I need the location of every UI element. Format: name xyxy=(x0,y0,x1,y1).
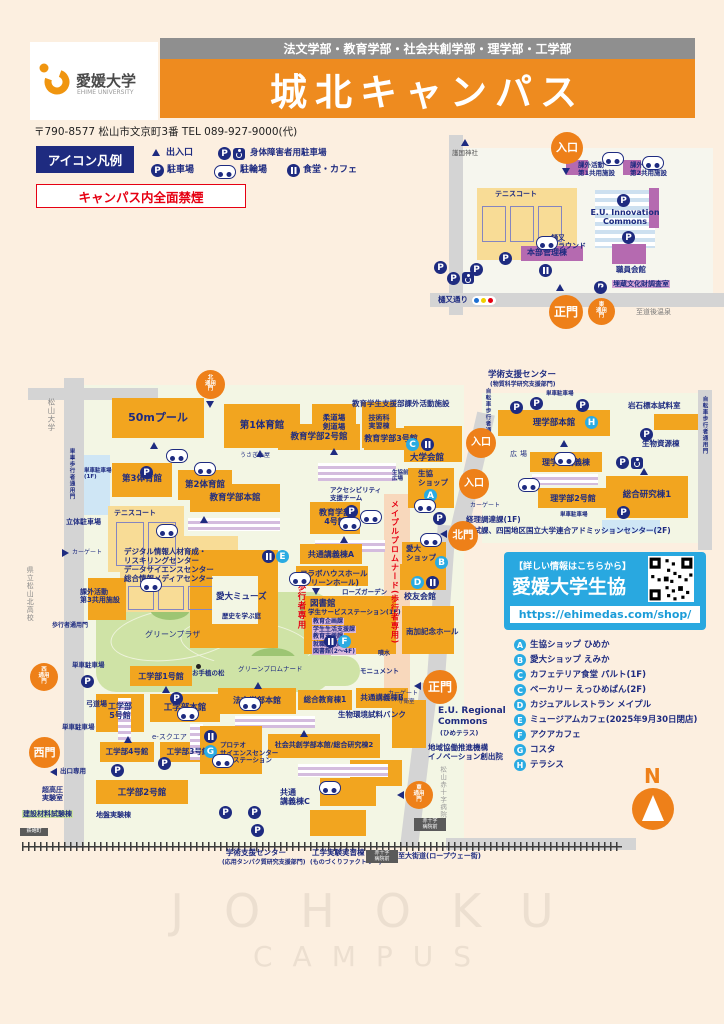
faculties-bar: 法文学部・教育学部・社会共創学部・理学部・工学部 xyxy=(160,38,695,59)
cafeteria-icon xyxy=(324,635,337,648)
gate-main: 正門 xyxy=(423,670,457,704)
parking-icon: P xyxy=(617,194,630,207)
building-eng4-label: 工学部4号館 xyxy=(100,748,154,757)
cafeteria-icon xyxy=(204,730,217,743)
keiri-label: 経理調達課(1F) xyxy=(466,516,521,525)
north-district-main-gate: 正門 xyxy=(549,295,583,329)
gate-marker xyxy=(596,285,604,292)
entrance-marker xyxy=(340,536,348,543)
coop-tagline: 【詳しい情報はこちらから】 xyxy=(514,559,631,572)
parking-icon: P xyxy=(447,272,460,285)
shop-list-marker: H xyxy=(514,759,526,771)
bicycle-parking-icon xyxy=(319,781,341,795)
rose-garden-label: ローズガーデン xyxy=(342,589,387,597)
bicycle-parking-icon xyxy=(414,499,436,513)
kita-hs-label: 県立松山北高校 xyxy=(26,566,34,622)
shop-list-label: ベーカリー えっひめぱん(2F) xyxy=(530,685,646,695)
building-eng1-label: 工学部1号館 xyxy=(130,672,192,681)
parking-structure xyxy=(532,474,598,485)
gate-north-service: 北 通用 門 xyxy=(196,370,225,399)
fountain-label: 噴水 xyxy=(378,650,390,657)
staff-hall-label: 職員会館 xyxy=(616,266,646,275)
bicycle-parking-icon xyxy=(156,524,178,538)
shop-list-label: アクアカフェ xyxy=(530,730,581,740)
university-name-ja: 愛媛大学 xyxy=(76,70,136,91)
gate-entrance-2: 入口 xyxy=(459,469,489,499)
parking-legend-icon: P xyxy=(151,164,164,177)
green-promenade-label: グリーンプロムナード xyxy=(238,666,302,674)
university-name-en: EHIME UNIVERSITY xyxy=(77,89,134,96)
cafeteria-icon xyxy=(426,576,439,589)
moto-parking-label: 単車駐車場 xyxy=(72,662,105,670)
cafeteria-icon xyxy=(262,550,275,563)
bicycle-parking-icon xyxy=(602,152,624,166)
entrance-marker xyxy=(256,450,264,457)
building-muse-label: 愛大ミューズ xyxy=(216,592,267,602)
maple-promenade-label: メイプルプロムナード(歩行者専用) xyxy=(390,500,399,702)
gate-west-service: 西 通用 門 xyxy=(30,663,58,691)
parking-icon: P xyxy=(433,512,446,525)
bicycle-parking-icon xyxy=(518,478,540,492)
shop-list-label: カジュアルレストラン メイプル xyxy=(530,700,651,710)
building-eng-lab xyxy=(310,810,366,836)
media-center-court xyxy=(158,586,184,610)
rock-sample-label: 岩石標本試料室 xyxy=(628,402,681,411)
wheelchair-icon xyxy=(233,148,245,160)
car-gate-label: カーゲート xyxy=(470,502,500,509)
no-smoking-notice: キャンパス内全面禁煙 xyxy=(36,184,246,208)
digital-center-label: デジタル情報人材育成・ リスキリングセンター データサイエンスセンター 総合情報… xyxy=(124,548,214,583)
okaido-label: 至大街道(ロープウェー街) xyxy=(398,852,481,860)
uhp-lab-label: 超高圧 実験室 xyxy=(42,786,63,803)
matsuyama-univ-label: 松山大学 xyxy=(46,398,55,432)
cafeteria-legend-label: 食堂・カフェ xyxy=(303,165,357,176)
parking-legend-label: 駐車場 xyxy=(167,165,194,176)
hiyou-street-label: 樋又通り xyxy=(438,296,468,305)
building-sci2-label: 理学部2号館 xyxy=(538,494,608,503)
building-lecture-a-label: 共通講義棟A xyxy=(300,550,362,559)
tram-stop-redcross: 赤十字 病院前 xyxy=(366,850,398,863)
station-dept-label: 学生生活支援課 xyxy=(312,626,356,633)
guard-label: 守衛室 xyxy=(398,699,415,705)
media-center-court xyxy=(188,586,214,610)
building-gym1-label: 第1体育館 xyxy=(224,420,300,431)
staff-hall-building xyxy=(612,244,646,264)
parking-icon: P xyxy=(140,466,153,479)
eu-regional-sub-label: (ひめテラス) xyxy=(440,730,478,738)
building-research1-label: 総合研究棟1 xyxy=(606,490,688,500)
eu-regional-label: E.U. Regional Commons xyxy=(438,706,506,727)
material-lab-label: 建設材料試験棟 xyxy=(22,810,73,818)
building-pool-label: 50mプール xyxy=(112,412,204,425)
building-club3-label: 課外活動 第3共用施設 xyxy=(80,588,120,605)
campus-title: 城北キャンパス xyxy=(270,62,585,116)
building-rock xyxy=(654,414,698,430)
entrance-marker xyxy=(330,448,338,455)
support-center-s-label: 学術支援センター xyxy=(226,849,286,858)
entrance-marker xyxy=(254,682,262,689)
bicycle-parking-legend-label: 駐輪場 xyxy=(240,165,267,176)
shop-marker-e: E xyxy=(276,550,289,563)
icon-legend-title: アイコン凡例 xyxy=(48,150,122,169)
bicycle-parking-icon xyxy=(289,572,311,586)
building-eng5-label: 工学部 5号館 xyxy=(96,702,144,721)
shop-list-marker: C xyxy=(514,684,526,696)
building-gen-edu1-label: 総合教育棟1 xyxy=(298,696,352,705)
parking-icon: P xyxy=(576,399,589,412)
exit-only-label: 出口専用 xyxy=(60,768,86,776)
pine-label: お手植の松 xyxy=(192,670,225,678)
bio-resource-label: 生物資源棟 xyxy=(642,440,680,449)
building-moto-parking-1f xyxy=(84,455,110,515)
bicycle-parking-icon xyxy=(420,533,442,547)
tennis-main-label: テニスコート xyxy=(114,509,156,517)
parking-tower-label: 立体駐車場 xyxy=(66,518,101,526)
bicycle-parking-icon xyxy=(360,510,382,524)
accessible-parking-icon: P xyxy=(218,147,231,160)
wheelchair-icon xyxy=(462,272,474,284)
gate-west: 西門 xyxy=(29,737,60,768)
bicycle-parking-icon xyxy=(194,462,216,476)
car-gate-label: カーゲート xyxy=(72,549,102,556)
entrance-marker xyxy=(640,468,648,475)
shop-list-marker: B xyxy=(514,654,526,666)
building-nanka-label: 南加記念ホール xyxy=(406,628,459,637)
shop-marker-f: F xyxy=(338,635,351,648)
campus-map-page: JOHOKU CAMPUS 法文学部・教育学部・社会共創学部・理学部・工学部 城… xyxy=(0,0,724,1024)
north-district-east-gate: 東 通用 門 xyxy=(588,298,615,325)
entrance-marker xyxy=(200,516,208,523)
gate-marker xyxy=(397,791,404,799)
building-moto-parking-1f-label: 単車駐車場 (1F) xyxy=(84,468,112,481)
building-univ-hall-label: 大学会館 xyxy=(410,453,444,463)
bicycle-parking-icon xyxy=(140,578,162,592)
parking-icon: P xyxy=(158,757,171,770)
bicycle-parking-icon xyxy=(339,517,361,531)
shop-list-marker: G xyxy=(514,744,526,756)
building-judo-label: 柔道場 剣道場 xyxy=(312,414,356,432)
bicycle-parking-icon xyxy=(642,156,664,170)
coop-plaza-label: 生協前 広場 xyxy=(392,470,409,483)
wheelchair-icon xyxy=(631,457,643,469)
shop-list-marker: C xyxy=(514,669,526,681)
bicycle-parking-icon xyxy=(239,697,261,711)
parking-icon: P xyxy=(510,401,523,414)
support-center-n-label: 学術支援センター xyxy=(488,370,556,380)
moto-parking-label: 単車駐車場 xyxy=(546,391,574,397)
bio-bank-label: 生物環境試料バンク xyxy=(338,711,406,720)
compass-n-label: N xyxy=(644,764,661,788)
watermark-campus: CAMPUS xyxy=(0,940,724,973)
entrance-legend-icon xyxy=(152,149,160,156)
tram-stop-redcross: 赤十字 病院前 xyxy=(414,818,446,831)
bike-ped-gate-label: 自転車歩行者通用門 xyxy=(701,396,707,455)
shop-marker-h: H xyxy=(585,416,598,429)
cafeteria-icon xyxy=(539,264,552,277)
shop-list-label: 愛大ショップ えみか xyxy=(530,655,609,665)
history-garden-label: 歴史を学ぶ庭 xyxy=(222,613,261,621)
parking-icon: P xyxy=(219,806,232,819)
accessibility-label: アクセシビリティ 支援チーム xyxy=(330,487,381,502)
shop-marker-b: B xyxy=(435,556,448,569)
parking-icon: P xyxy=(616,456,629,469)
coop-info-box: 【詳しい情報はこちらから】 愛媛大学生協 https://ehimedas.co… xyxy=(504,552,706,630)
shop-marker-c: C xyxy=(406,438,419,451)
qr-code xyxy=(648,556,694,602)
building-aidai-shop-label: 愛大 ショップ xyxy=(406,545,436,563)
gate-marker xyxy=(62,549,69,557)
shrine-label: 護国神社 xyxy=(452,150,478,158)
coop-url: https://ehimedas.com/shop/ xyxy=(519,608,692,621)
student-station-label: 学生サービスステーション(1F) xyxy=(308,609,401,617)
campus-title-bar: 城北キャンパス xyxy=(160,59,695,118)
shop-marker-d: D xyxy=(411,576,424,589)
building-lecture-c-label: 共通 講義棟C xyxy=(280,788,310,807)
ehime-university-logo-icon xyxy=(38,60,70,102)
gate-east-service: 東 通用 門 xyxy=(405,781,433,809)
parking-icon: P xyxy=(622,231,635,244)
ped-only-label: 歩行者専用 xyxy=(296,582,306,646)
innovation-label: 地域協働推進機構 イノベーション創出院 xyxy=(428,744,503,762)
bicycle-parking-legend-icon xyxy=(214,165,236,179)
esquare-label: e-スクエア xyxy=(152,733,187,741)
moto-parking-label: 単車駐車場 xyxy=(560,512,588,518)
bicycle-parking-icon xyxy=(554,452,576,466)
bicycle-parking-icon xyxy=(166,449,188,463)
eng-lab-label: 工学実験実習棟 xyxy=(312,849,365,858)
faculties-text: 法文学部・教育学部・社会共創学部・理学部・工学部 xyxy=(283,40,571,57)
entrance-marker xyxy=(300,730,308,737)
exit-marker xyxy=(50,768,57,776)
building-gym2-label: 第2体育館 xyxy=(178,480,232,490)
redcross-hospital-label: 松山赤十字病院 xyxy=(438,766,446,819)
shop-list-marker: A xyxy=(514,639,526,651)
plaza-label: 広場 xyxy=(510,450,530,458)
euic-label: E.U. Innovation Commons xyxy=(588,208,662,227)
gate-entrance-1: 入口 xyxy=(466,428,496,458)
gate-marker xyxy=(414,682,421,690)
parking-icon: P xyxy=(248,806,261,819)
university-logo-box: 愛媛大学 EHIME UNIVERSITY xyxy=(30,42,158,120)
cafeteria-icon xyxy=(421,438,434,451)
entrance-marker xyxy=(560,440,568,447)
watermark-johoku: JOHOKU xyxy=(0,884,724,938)
building-tech-label: 技術科 実習棟 xyxy=(362,414,396,431)
gate-marker xyxy=(562,168,570,175)
coop-url-bar: https://ehimedas.com/shop/ xyxy=(510,606,700,623)
shop-list-marker: F xyxy=(514,729,526,741)
entrance-marker xyxy=(124,736,132,743)
shop-list-marker: E xyxy=(514,714,526,726)
parking-icon: P xyxy=(170,692,183,705)
parking-icon: P xyxy=(617,506,630,519)
building-social-label: 社会共創学部本館/総合研究棟2 xyxy=(262,741,386,749)
entrance-legend-label: 出入口 xyxy=(166,148,193,159)
entrance-marker xyxy=(150,442,158,449)
cafeteria-legend-icon xyxy=(287,164,300,177)
accessible-parking-label: 身体障害者用駐車場 xyxy=(250,148,327,158)
cultural-survey-label: 埋蔵文化財調査室 xyxy=(612,280,670,288)
parking-icon: P xyxy=(499,252,512,265)
shop-list-label: カフェテリア食堂 パルト(1F) xyxy=(530,670,646,680)
parking-icon: P xyxy=(530,397,543,410)
building-edu-main-label: 教育学部本館 xyxy=(190,493,280,503)
parking-icon: P xyxy=(640,428,653,441)
coop-name: 愛媛大学生協 xyxy=(512,572,626,599)
ped-gate-label: 歩行者通用門 xyxy=(52,622,88,629)
entrance-marker xyxy=(312,588,320,595)
parking-icon: P xyxy=(111,764,124,777)
gate-marker xyxy=(206,401,214,408)
support-center-s-sub-label: (応用タンパク質研究支援部門) xyxy=(222,859,306,866)
station-dept-label: 図書館(2〜4F) xyxy=(312,648,356,655)
moto-parking-label: 単車駐車場 xyxy=(62,724,95,732)
shop-list-label: 生協ショップ ひめか xyxy=(530,640,609,650)
building-eng2-label: 工学部2号館 xyxy=(96,788,188,798)
no-smoking-text: キャンパス内全面禁煙 xyxy=(78,187,203,206)
admission-label: 入試課、四国地区国立大学連合アドミッションセンター(2F) xyxy=(466,527,671,536)
gate-marker xyxy=(556,284,564,291)
north-tennis-label: テニスコート xyxy=(495,190,537,198)
green-plaza-label: グリーンプラザ xyxy=(145,630,200,639)
campus-address: 〒790-8577 松山市文京町3番 TEL 089-927-9000(代) xyxy=(34,124,297,139)
moto-ped-gate-label: 単車歩行者通用門 xyxy=(68,448,74,500)
tennis-court-outline xyxy=(510,206,534,242)
parking-structure xyxy=(318,463,396,481)
support-center-n-sub-label: (物質科学研究支援部門) xyxy=(490,381,556,388)
building-eu-regional xyxy=(392,700,426,748)
north-district-entrance-gate: 入口 xyxy=(551,132,583,164)
ground-lab-label: 地盤実験棟 xyxy=(96,811,131,819)
shop-list-label: テラシス xyxy=(530,760,564,770)
parking-icon: P xyxy=(251,824,264,837)
parking-icon: P xyxy=(81,675,94,688)
car-gate-label: カーゲート xyxy=(388,690,418,697)
bicycle-parking-icon xyxy=(212,754,234,768)
shop-list-label: コスタ xyxy=(530,745,556,755)
entrance-marker xyxy=(162,686,170,693)
gate-north: 北門 xyxy=(448,521,478,551)
traffic-light-icon xyxy=(472,296,496,305)
compass-icon xyxy=(632,788,674,830)
road xyxy=(449,135,463,315)
building-coop-shop-label: 生協 ショップ xyxy=(418,470,448,488)
parking-structure xyxy=(298,764,388,777)
bicycle-parking-icon xyxy=(177,707,199,721)
icon-legend-title-box: アイコン凡例 xyxy=(36,146,134,173)
building-edu2-label: 教育学部2号館 xyxy=(278,432,360,442)
bicycle-parking-icon xyxy=(536,236,558,250)
shop-list-label: ミュージアムカフェ(2025年9月30日閉店) xyxy=(530,715,697,725)
edu-support-label: 教育学生支援部課外活動施設 xyxy=(352,400,450,409)
dogo-label: 至道後温泉 xyxy=(636,308,671,316)
tennis-court-outline xyxy=(482,206,506,242)
tram-stop-teppocho: 鉄砲町 xyxy=(20,828,48,836)
shrine-marker xyxy=(461,139,469,146)
parking-icon: P xyxy=(434,261,447,274)
building-alumni-label: 校友会館 xyxy=(404,592,436,601)
station-dept-label: 教育企画課 xyxy=(312,618,344,625)
rabbit-hut-label: うさぎ小屋 xyxy=(240,452,270,459)
shop-list-marker: D xyxy=(514,699,526,711)
